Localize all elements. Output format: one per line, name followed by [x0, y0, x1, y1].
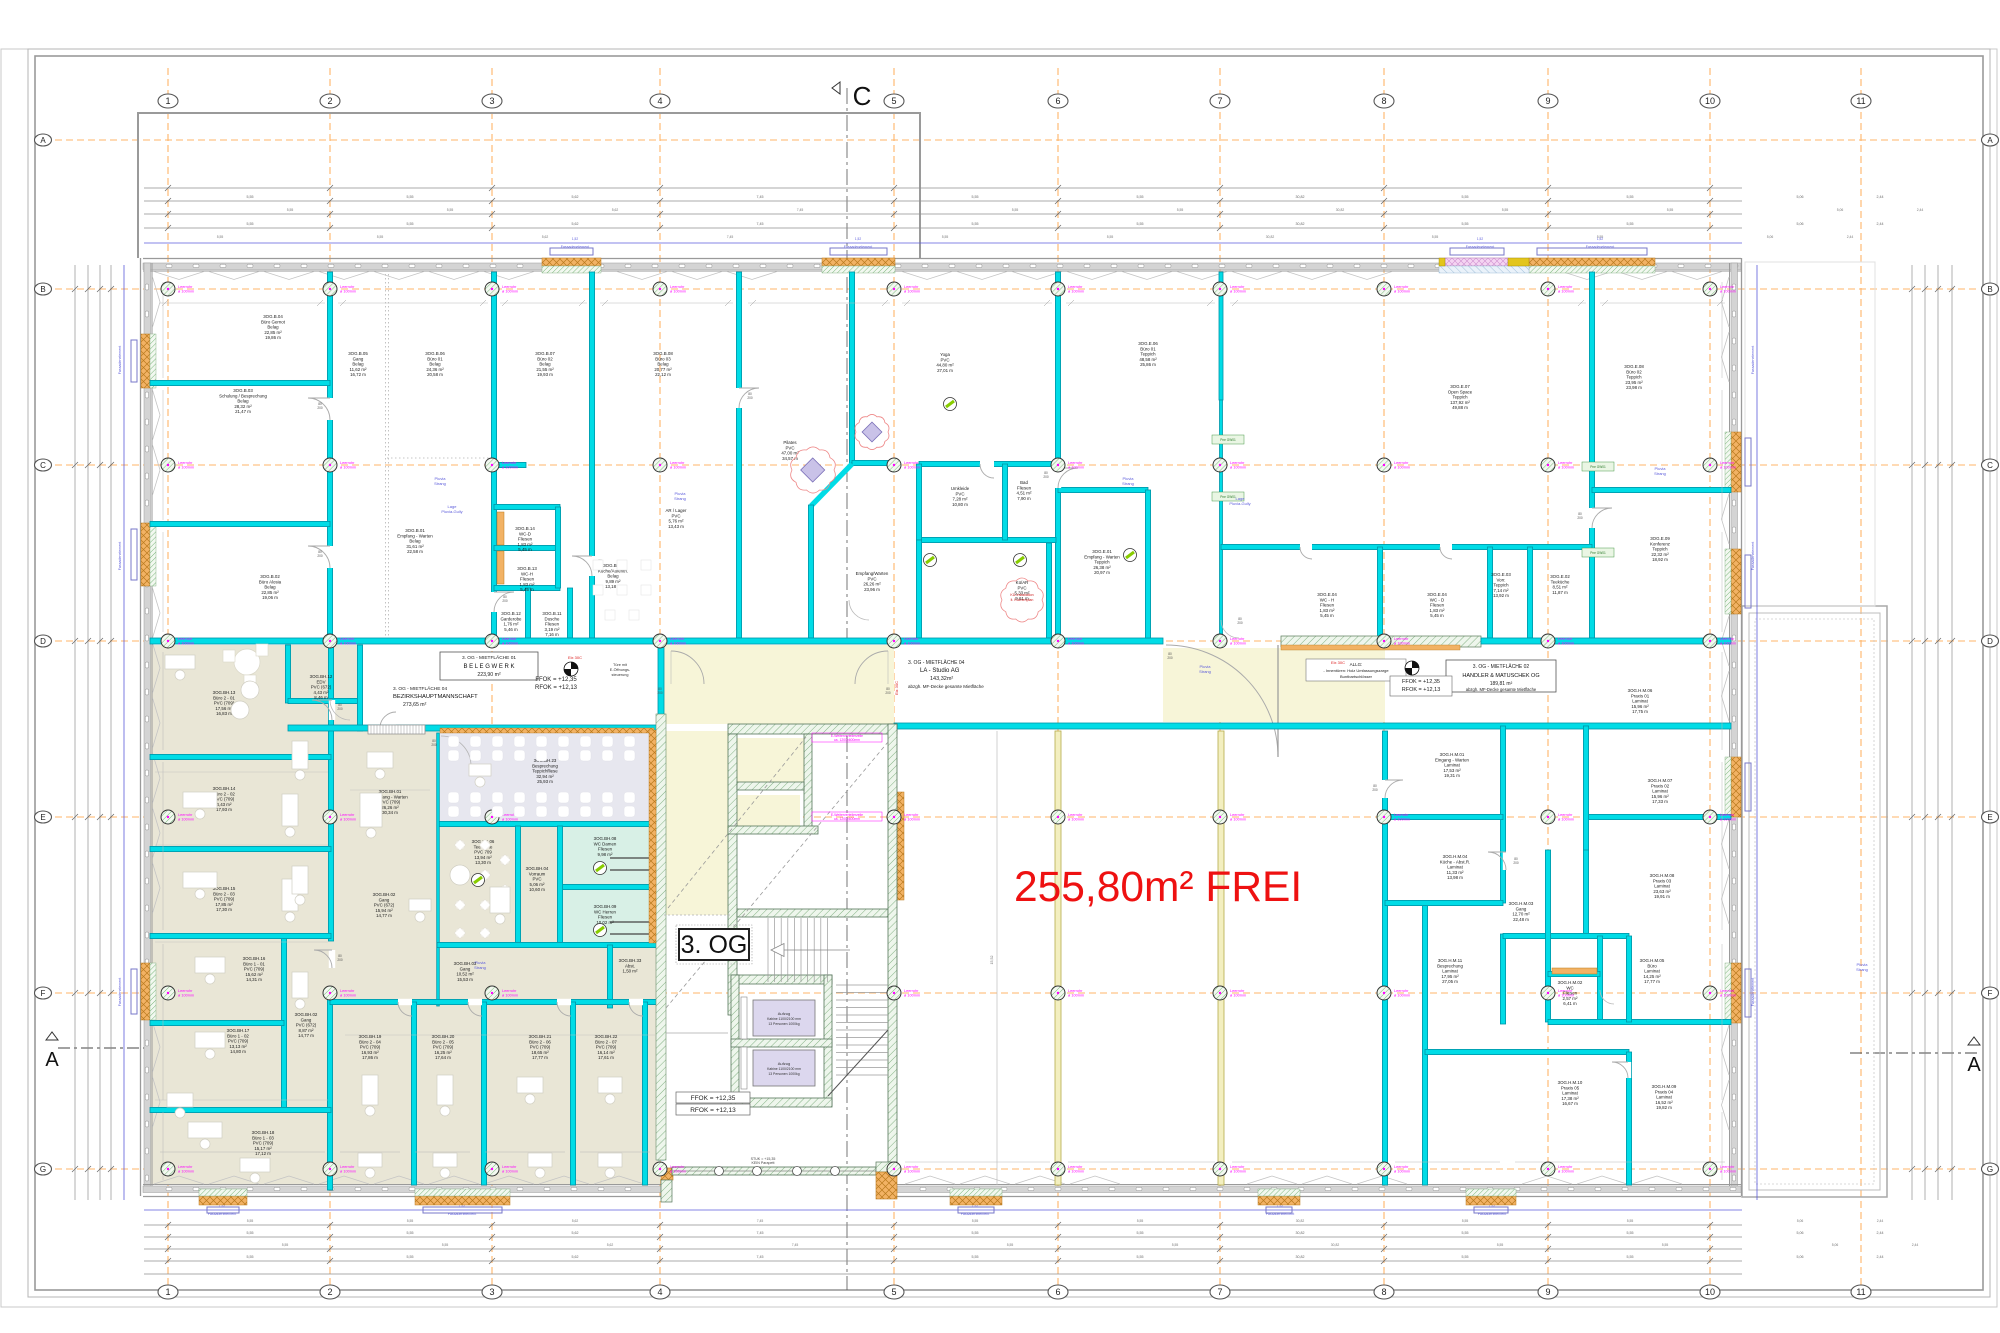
svg-text:8: 8	[1381, 1287, 1386, 1297]
svg-text:PVC (709): PVC (709)	[253, 1141, 274, 1146]
svg-text:Leerrohr: Leerrohr	[1720, 285, 1735, 289]
svg-text:A: A	[1987, 136, 1993, 145]
svg-text:5,06: 5,06	[1837, 208, 1844, 212]
svg-text:Vorraum: Vorraum	[529, 871, 546, 876]
svg-text:Belag: Belag	[352, 362, 364, 367]
svg-text:5,55: 5,55	[972, 1255, 979, 1259]
svg-text:B E L E G W E R K: B E L E G W E R K	[463, 664, 514, 670]
svg-text:25,86 m: 25,86 m	[1140, 362, 1156, 367]
svg-text:Empfang/Warten: Empfang/Warten	[856, 571, 889, 576]
svg-text:Strang: Strang	[1654, 471, 1666, 476]
svg-text:137,92 m²: 137,92 m²	[1450, 400, 1470, 405]
svg-text:Leerrohr: Leerrohr	[178, 461, 193, 465]
svg-text:Umkleide: Umkleide	[951, 486, 970, 491]
svg-text:Leerrohr: Leerrohr	[502, 461, 517, 465]
svg-text:5,06: 5,06	[1797, 1255, 1804, 1259]
svg-text:3OG.B.11: 3OG.B.11	[542, 611, 562, 616]
svg-text:5,45 m: 5,45 m	[520, 587, 534, 592]
svg-text:3OG.B.08: 3OG.B.08	[653, 351, 673, 356]
svg-text:Leerrohr: Leerrohr	[904, 813, 919, 817]
svg-text:3OG.H.M.04: 3OG.H.M.04	[1443, 854, 1468, 859]
svg-text:5,55: 5,55	[1667, 208, 1674, 212]
svg-text:Leerrohr: Leerrohr	[1720, 1165, 1735, 1169]
svg-text:2: 2	[327, 1287, 332, 1297]
svg-text:ø 100mm: ø 100mm	[1230, 466, 1246, 470]
svg-text:19,82 m: 19,82 m	[1656, 1105, 1672, 1110]
svg-text:3OG.B.04: 3OG.B.04	[263, 314, 283, 319]
svg-text:WC: WC	[1566, 985, 1573, 990]
svg-text:PVC: PVC	[955, 491, 964, 496]
svg-text:1,52: 1,52	[1597, 237, 1603, 241]
svg-text:31,61 m²: 31,61 m²	[406, 544, 424, 549]
svg-text:ø 100mm: ø 100mm	[1068, 994, 1084, 998]
svg-text:3OG.BH.19: 3OG.BH.19	[359, 1034, 382, 1039]
svg-text:3OG.B.06: 3OG.B.06	[425, 351, 445, 356]
svg-text:Büro Gernot: Büro Gernot	[261, 319, 286, 324]
svg-text:7,45: 7,45	[757, 222, 764, 226]
svg-text:3OG.BH.02: 3OG.BH.02	[373, 892, 396, 897]
svg-text:17,85 m²: 17,85 m²	[215, 902, 233, 907]
svg-text:Leerrohr: Leerrohr	[1558, 637, 1573, 641]
svg-text:7,45: 7,45	[792, 1243, 799, 1247]
svg-text:200: 200	[1577, 516, 1583, 520]
svg-text:D: D	[40, 637, 46, 646]
svg-text:KÜ-Installation: KÜ-Installation	[1010, 593, 1033, 597]
svg-text:Büro Alosia: Büro Alosia	[259, 579, 282, 584]
svg-text:4: 4	[657, 96, 662, 106]
svg-text:200: 200	[337, 958, 343, 962]
svg-text:Teeküche: Teeküche	[1551, 579, 1570, 584]
svg-text:Büro 2 - 05: Büro 2 - 05	[432, 1039, 454, 1044]
svg-text:5,55: 5,55	[447, 208, 454, 212]
svg-text:Gang: Gang	[301, 1017, 312, 1022]
svg-text:3OG.BH.09: 3OG.BH.09	[594, 904, 617, 909]
svg-text:RFOK = +12,13: RFOK = +12,13	[690, 1107, 736, 1114]
svg-text:ø 100mm: ø 100mm	[1068, 1170, 1084, 1174]
svg-text:17,95 m²: 17,95 m²	[1441, 974, 1459, 979]
svg-text:Laminat: Laminat	[1562, 1091, 1578, 1096]
svg-text:F: F	[1988, 989, 1993, 998]
svg-text:Gang: Gang	[353, 356, 364, 361]
svg-text:5,55: 5,55	[942, 235, 949, 239]
svg-text:30,82: 30,82	[1336, 208, 1345, 212]
svg-text:ø 100mm: ø 100mm	[1230, 994, 1246, 998]
svg-text:23,95 m²: 23,95 m²	[1625, 380, 1643, 385]
svg-text:7,16 m: 7,16 m	[545, 632, 559, 637]
svg-text:Empfang - Warten: Empfang - Warten	[1084, 554, 1120, 559]
svg-text:2,44: 2,44	[1877, 222, 1884, 226]
svg-text:9: 9	[1545, 96, 1550, 106]
svg-text:Leerrohr: Leerrohr	[1068, 1165, 1083, 1169]
svg-text:Garderobe: Garderobe	[501, 616, 523, 621]
svg-text:Leerrohr: Leerrohr	[904, 285, 919, 289]
svg-text:17,53 m²: 17,53 m²	[1443, 768, 1461, 773]
svg-text:5,55: 5,55	[217, 235, 224, 239]
svg-text:5,55: 5,55	[1502, 208, 1509, 212]
svg-text:ø 100mm: ø 100mm	[502, 466, 518, 470]
svg-text:3OG.BH.02: 3OG.BH.02	[295, 1012, 318, 1017]
svg-text:Eix 30C: Eix 30C	[568, 655, 582, 660]
svg-text:Laminat: Laminat	[1442, 969, 1458, 974]
svg-text:ø 100mm: ø 100mm	[502, 994, 518, 998]
svg-text:WC - D: WC - D	[1430, 597, 1444, 602]
svg-text:5,45 m: 5,45 m	[518, 547, 532, 552]
svg-text:10,60 m: 10,60 m	[529, 887, 545, 892]
svg-text:5,55: 5,55	[1137, 195, 1144, 199]
svg-text:15,52: 15,52	[990, 956, 994, 965]
svg-text:A: A	[40, 136, 46, 145]
svg-text:3OG.E.07: 3OG.E.07	[1450, 384, 1470, 389]
svg-text:18,65 m²: 18,65 m²	[531, 1050, 549, 1055]
svg-text:3OG.BH.12: 3OG.BH.12	[310, 674, 333, 679]
svg-text:Büro 2 - 01: Büro 2 - 01	[213, 695, 235, 700]
svg-text:Leerrohr: Leerrohr	[178, 989, 193, 993]
svg-text:5,55: 5,55	[1462, 195, 1469, 199]
svg-text:C: C	[853, 81, 872, 111]
svg-text:Büro 1 - 02: Büro 1 - 02	[227, 1033, 249, 1038]
svg-text:Büro 2 - 06: Büro 2 - 06	[529, 1039, 551, 1044]
svg-text:B: B	[1987, 285, 1992, 294]
svg-text:ø 100mm: ø 100mm	[1230, 642, 1246, 646]
svg-text:4,43 m²: 4,43 m²	[217, 802, 232, 807]
svg-text:1,52: 1,52	[1477, 237, 1483, 241]
svg-text:17,64 m: 17,64 m	[435, 1055, 451, 1060]
svg-text:steuerung: steuerung	[612, 673, 629, 677]
svg-text:5,55: 5,55	[247, 1231, 254, 1235]
svg-text:Praxis 02: Praxis 02	[1651, 783, 1670, 788]
svg-text:3OG.E.06: 3OG.E.06	[1138, 341, 1158, 346]
svg-text:ø 100mm: ø 100mm	[670, 466, 686, 470]
svg-text:18,92 m: 18,92 m	[1652, 557, 1668, 562]
svg-text:2,57 m²: 2,57 m²	[1563, 996, 1578, 1001]
svg-text:ø 100mm: ø 100mm	[670, 1170, 686, 1174]
svg-text:ø 100mm: ø 100mm	[1720, 994, 1736, 998]
svg-text:1: 1	[165, 1287, 170, 1297]
svg-text:5,62: 5,62	[607, 1243, 614, 1247]
svg-text:ø 100mm: ø 100mm	[178, 818, 194, 822]
svg-text:3OG.B.05: 3OG.B.05	[348, 351, 368, 356]
svg-text:Belag: Belag	[539, 362, 551, 367]
svg-text:Leerrohr: Leerrohr	[1558, 1165, 1573, 1169]
svg-text:ø 100mm: ø 100mm	[340, 1170, 356, 1174]
svg-text:1,83 m²: 1,83 m²	[518, 542, 533, 547]
svg-text:ø 100mm: ø 100mm	[904, 1170, 920, 1174]
svg-text:17,77 m: 17,77 m	[1644, 979, 1660, 984]
svg-text:14,77 m: 14,77 m	[376, 913, 392, 918]
svg-text:Fliesen: Fliesen	[1430, 603, 1445, 608]
svg-text:Leerrohr: Leerrohr	[1558, 461, 1573, 465]
svg-text:Eix 30C: Eix 30C	[894, 681, 899, 695]
svg-text:Teppich: Teppich	[1626, 375, 1642, 380]
svg-text:13,13 m²: 13,13 m²	[229, 1044, 247, 1049]
svg-text:ø 100mm: ø 100mm	[178, 994, 194, 998]
svg-text:ø 100mm: ø 100mm	[904, 466, 920, 470]
svg-text:PVC (709): PVC (709)	[380, 800, 401, 805]
svg-text:ø 100mm: ø 100mm	[1230, 818, 1246, 822]
svg-text:Leerrohr: Leerrohr	[1720, 637, 1735, 641]
svg-text:ø 100mm: ø 100mm	[340, 642, 356, 646]
svg-text:B: B	[40, 285, 45, 294]
svg-text:5,62: 5,62	[612, 208, 619, 212]
svg-text:12,70 m²: 12,70 m²	[1512, 912, 1530, 917]
svg-text:5,45 m: 5,45 m	[1430, 613, 1444, 618]
svg-text:1,83 m²: 1,83 m²	[1430, 608, 1445, 613]
svg-text:25,93 m: 25,93 m	[537, 779, 553, 784]
svg-text:5,62: 5,62	[542, 235, 549, 239]
svg-text:13,94 m²: 13,94 m²	[474, 855, 492, 860]
svg-text:Büro 1 - 01: Büro 1 - 01	[243, 961, 265, 966]
svg-text:- Innentüren: Holz Umfassungsz: - Innentüren: Holz Umfassungszarge	[1323, 668, 1389, 673]
svg-text:Besprechung: Besprechung	[1437, 963, 1463, 968]
svg-text:22,85 m²: 22,85 m²	[261, 590, 279, 595]
svg-text:Leerrohr: Leerrohr	[340, 461, 355, 465]
svg-text:3OG.BH.08: 3OG.BH.08	[594, 836, 617, 841]
svg-text:Fliesen: Fliesen	[1320, 603, 1335, 608]
svg-text:22,32 m²: 22,32 m²	[1651, 552, 1669, 557]
svg-text:14,25 m²: 14,25 m²	[1643, 974, 1661, 979]
svg-text:ø 100mm: ø 100mm	[904, 818, 920, 822]
svg-text:PVC (709): PVC (709)	[214, 897, 235, 902]
svg-text:Leerrohr: Leerrohr	[1230, 813, 1245, 817]
svg-text:HANDLER & MATUSCHEK OG: HANDLER & MATUSCHEK OG	[1462, 673, 1539, 679]
svg-text:ø 100mm: ø 100mm	[904, 994, 920, 998]
svg-text:Küche - Abst.R.: Küche - Abst.R.	[1440, 859, 1471, 864]
svg-text:5,55: 5,55	[1462, 222, 1469, 226]
svg-text:PVC: PVC	[785, 445, 794, 450]
svg-text:3. OG - MIETFLÄCHE 01: 3. OG - MIETFLÄCHE 01	[462, 654, 516, 661]
svg-text:Fliesen: Fliesen	[545, 622, 560, 627]
svg-text:PVC: PVC	[532, 877, 541, 882]
svg-text:15,62 m²: 15,62 m²	[245, 972, 263, 977]
svg-text:Teppich: Teppich	[1493, 583, 1509, 588]
svg-text:5,55: 5,55	[1137, 1231, 1144, 1235]
svg-text:5,06: 5,06	[1767, 235, 1774, 239]
svg-text:13 Personen 1000kg: 13 Personen 1000kg	[768, 1022, 799, 1026]
svg-text:Strang: Strang	[1199, 669, 1211, 674]
svg-text:EDV: EDV	[316, 679, 325, 684]
svg-text:PVC (709): PVC (709)	[433, 1045, 454, 1050]
svg-text:PVC: PVC	[1017, 585, 1026, 590]
svg-text:Laminat: Laminat	[1654, 884, 1670, 889]
svg-text:5,55: 5,55	[1627, 1231, 1634, 1235]
svg-text:Pluvia-Gully: Pluvia-Gully	[1229, 501, 1250, 506]
svg-text:13,43 m: 13,43 m	[668, 524, 684, 529]
svg-text:ø 100mm: ø 100mm	[1394, 290, 1410, 294]
svg-text:2,44: 2,44	[1877, 195, 1884, 199]
svg-text:200: 200	[317, 406, 323, 410]
svg-text:6: 6	[1055, 96, 1060, 106]
svg-text:ø 100mm: ø 100mm	[1394, 994, 1410, 998]
svg-text:Fliesen: Fliesen	[520, 577, 535, 582]
svg-text:5,55: 5,55	[282, 1243, 289, 1247]
svg-text:17,86 m: 17,86 m	[362, 1055, 378, 1060]
svg-text:Praxis 04: Praxis 04	[1655, 1089, 1674, 1094]
svg-text:5,55: 5,55	[1462, 1231, 1469, 1235]
svg-text:3OG.H.M.11: 3OG.H.M.11	[1438, 958, 1463, 963]
svg-text:lt. Küchenplan: lt. Küchenplan	[1011, 598, 1034, 602]
svg-text:1,83 m²: 1,83 m²	[520, 582, 535, 587]
svg-text:FFOK = +12,35: FFOK = +12,35	[691, 1095, 736, 1102]
svg-text:26,26 m²: 26,26 m²	[863, 582, 881, 587]
svg-text:9: 9	[1545, 1287, 1550, 1297]
svg-text:1,52: 1,52	[855, 237, 861, 241]
svg-text:ø 100mm: ø 100mm	[1068, 290, 1084, 294]
svg-text:PVC (709): PVC (709)	[530, 1045, 551, 1050]
svg-text:3OG.B.12: 3OG.B.12	[501, 611, 521, 616]
svg-text:200: 200	[1237, 621, 1243, 625]
svg-text:1,52: 1,52	[572, 237, 578, 241]
svg-text:Fassadenelement: Fassadenelement	[1751, 978, 1755, 1007]
svg-text:ø 100mm: ø 100mm	[1720, 642, 1736, 646]
svg-text:Leerrohr: Leerrohr	[1558, 813, 1573, 817]
svg-text:5,55: 5,55	[1177, 208, 1184, 212]
svg-text:30,82: 30,82	[1296, 1231, 1305, 1235]
svg-text:Türe mit: Türe mit	[613, 663, 628, 667]
svg-text:3OG.B.02: 3OG.B.02	[260, 574, 280, 579]
svg-text:3OG.B.03: 3OG.B.03	[233, 388, 253, 393]
svg-text:ALLG:: ALLG:	[1350, 662, 1363, 667]
svg-text:3OG.E.03: 3OG.E.03	[1491, 572, 1511, 577]
svg-text:Strang: Strang	[674, 496, 686, 501]
svg-text:7,45: 7,45	[757, 1231, 764, 1235]
svg-text:ø 100mm: ø 100mm	[1720, 290, 1736, 294]
svg-text:8,51 m²: 8,51 m²	[1553, 585, 1568, 590]
svg-text:28,32 m²: 28,32 m²	[234, 404, 252, 409]
svg-text:Leerrohr: Leerrohr	[1230, 1165, 1245, 1169]
svg-text:16,14 m²: 16,14 m²	[597, 1050, 615, 1055]
svg-text:A: A	[1967, 1054, 1981, 1076]
svg-text:7,90 m: 7,90 m	[1017, 496, 1031, 501]
svg-text:Büro 1 - 03: Büro 1 - 03	[252, 1135, 274, 1140]
svg-text:Leerrohr: Leerrohr	[904, 1165, 919, 1169]
svg-text:Fliesen: Fliesen	[1017, 485, 1032, 490]
svg-text:200: 200	[657, 691, 663, 695]
svg-text:22,48 m: 22,48 m	[1513, 917, 1529, 922]
svg-text:49,88 m: 49,88 m	[1452, 405, 1468, 410]
svg-text:Belag: Belag	[607, 574, 619, 579]
svg-text:143,32m²: 143,32m²	[930, 676, 953, 682]
svg-text:3OG.H.M.02: 3OG.H.M.02	[1558, 980, 1583, 985]
svg-text:200: 200	[317, 554, 323, 558]
svg-text:Teppich: Teppich	[1652, 547, 1668, 552]
svg-text:ø 100mm: ø 100mm	[1394, 466, 1410, 470]
svg-text:Kabine 1100/2100 mm: Kabine 1100/2100 mm	[767, 1017, 801, 1021]
svg-text:Leerrohr: Leerrohr	[904, 989, 919, 993]
svg-text:Leerrohr: Leerrohr	[1720, 461, 1735, 465]
svg-text:ø 100mm: ø 100mm	[1230, 290, 1246, 294]
svg-text:5,55: 5,55	[407, 1255, 414, 1259]
svg-text:Gang: Gang	[1516, 906, 1527, 911]
svg-text:5,06 m²: 5,06 m²	[530, 882, 545, 887]
svg-text:3. OG - MIETFLÄCHE 02: 3. OG - MIETFLÄCHE 02	[1473, 663, 1530, 670]
svg-text:Büro: Büro	[1647, 963, 1657, 968]
svg-text:ø 100mm: ø 100mm	[502, 818, 518, 822]
svg-text:4,51 m²: 4,51 m²	[1017, 491, 1032, 496]
svg-text:Laminat: Laminat	[1656, 1095, 1672, 1100]
svg-text:17,77 m: 17,77 m	[532, 1055, 548, 1060]
svg-text:Buntbartschlösser: Buntbartschlösser	[1340, 674, 1373, 679]
svg-text:Pne GW01: Pne GW01	[1590, 465, 1606, 469]
svg-text:11,33 m²: 11,33 m²	[1446, 870, 1464, 875]
svg-text:Praxis 01: Praxis 01	[1631, 693, 1650, 698]
svg-text:7,14 m²: 7,14 m²	[1494, 588, 1509, 593]
svg-text:Fassadenelement: Fassadenelement	[118, 978, 122, 1007]
svg-text:PVC (709): PVC (709)	[596, 1045, 617, 1050]
svg-text:3: 3	[489, 1287, 494, 1297]
svg-text:Leerrohr: Leerrohr	[502, 285, 517, 289]
svg-text:21,55 m²: 21,55 m²	[536, 367, 554, 372]
svg-text:Leerrohr: Leerrohr	[904, 637, 919, 641]
svg-text:Konferenz: Konferenz	[1650, 541, 1670, 546]
svg-text:Leerrohr: Leerrohr	[502, 989, 517, 993]
svg-text:5,55: 5,55	[407, 222, 414, 226]
svg-text:5,55: 5,55	[407, 1219, 414, 1223]
svg-text:20,77 m²: 20,77 m²	[654, 367, 672, 372]
svg-text:5,55: 5,55	[1627, 195, 1634, 199]
svg-text:Laminat: Laminat	[1644, 969, 1660, 974]
svg-text:3OG.E.04: 3OG.E.04	[1427, 592, 1447, 597]
svg-text:19,06 m: 19,06 m	[262, 595, 278, 600]
svg-text:ø 100mm: ø 100mm	[1558, 642, 1574, 646]
svg-text:AR / Lager: AR / Lager	[666, 508, 688, 513]
svg-text:Bad: Bad	[1020, 480, 1028, 485]
svg-text:7,45: 7,45	[797, 208, 804, 212]
svg-text:19,91 m: 19,91 m	[1654, 894, 1670, 899]
svg-text:5,55: 5,55	[1012, 208, 1019, 212]
svg-text:3OG.BH.21: 3OG.BH.21	[529, 1034, 552, 1039]
svg-text:Strang: Strang	[474, 965, 486, 970]
svg-text:Leerrohr: Leerrohr	[1394, 989, 1409, 993]
svg-text:FFOK = +12,35: FFOK = +12,35	[1402, 679, 1440, 685]
svg-text:3OG.BH.33: 3OG.BH.33	[619, 958, 642, 963]
svg-text:19,86 m: 19,86 m	[265, 335, 281, 340]
svg-text:Belag: Belag	[267, 325, 279, 330]
svg-text:Leerrohr: Leerrohr	[670, 285, 685, 289]
svg-text:Leerrohr: Leerrohr	[1068, 285, 1083, 289]
svg-text:5,62: 5,62	[572, 1231, 579, 1235]
svg-text:5,55: 5,55	[1137, 222, 1144, 226]
svg-text:KEIN Parapett: KEIN Parapett	[752, 1161, 775, 1165]
svg-text:Laminat: Laminat	[1632, 699, 1648, 704]
svg-text:5,55: 5,55	[1662, 1243, 1669, 1247]
svg-text:5,55: 5,55	[1007, 1243, 1014, 1247]
svg-text:3OG.H.M.09: 3OG.H.M.09	[1652, 1084, 1677, 1089]
svg-text:Fliesen: Fliesen	[598, 847, 613, 852]
svg-text:3OG.H.M.07: 3OG.H.M.07	[1648, 778, 1673, 783]
svg-text:abzgh. MF-Decke gesamte Mietfl: abzgh. MF-Decke gesamte Mietfläche	[908, 684, 984, 689]
svg-text:Strang: Strang	[434, 481, 446, 486]
svg-text:Pilates: Pilates	[783, 440, 797, 445]
svg-text:A: A	[45, 1049, 59, 1071]
svg-text:5,55: 5,55	[1432, 235, 1439, 239]
svg-text:ø 100mm: ø 100mm	[1068, 466, 1084, 470]
svg-text:200: 200	[1043, 475, 1049, 479]
svg-text:4,43 m²: 4,43 m²	[314, 690, 329, 695]
svg-text:1,50 m²: 1,50 m²	[623, 969, 638, 974]
svg-text:Leerrohr: Leerrohr	[1230, 285, 1245, 289]
svg-text:20,97 m: 20,97 m	[1094, 570, 1110, 575]
svg-text:G: G	[40, 1165, 46, 1174]
svg-text:PVC: PVC	[940, 357, 949, 362]
svg-text:17,61 m: 17,61 m	[598, 1055, 614, 1060]
svg-text:17,93 m: 17,93 m	[216, 807, 232, 812]
svg-text:C: C	[40, 461, 46, 470]
svg-text:27,05 m: 27,05 m	[1442, 979, 1458, 984]
svg-text:5,55: 5,55	[377, 235, 384, 239]
svg-text:2,44: 2,44	[1877, 1255, 1884, 1259]
svg-text:Leerrohr: Leerrohr	[178, 637, 193, 641]
svg-text:Leerrohr: Leerrohr	[1068, 637, 1083, 641]
